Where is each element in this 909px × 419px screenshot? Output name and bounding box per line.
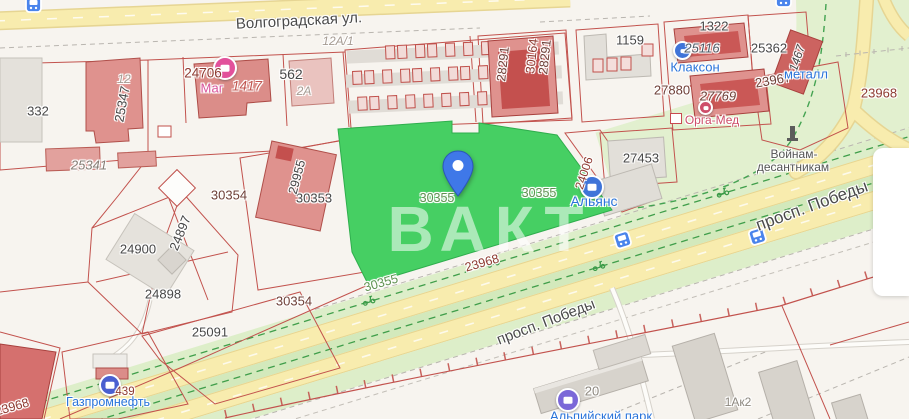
house-number: 12 [117, 72, 130, 86]
memorial-label: Войнам- [771, 147, 818, 161]
poi-label[interactable]: Клаксон [670, 60, 719, 75]
parcel-number: 30355 [522, 186, 557, 200]
parcel-number: 24706 [184, 66, 222, 81]
parcel-number: 332 [27, 104, 49, 119]
map-canvas[interactable]: ВАКТ Волгоградская ул. просп. Победы про… [0, 0, 909, 419]
map-pin-icon[interactable] [441, 150, 475, 197]
house-number: 2А [297, 84, 312, 98]
parcel-number: 1159 [616, 33, 644, 48]
poi-label[interactable]: Орга-Мед [685, 113, 739, 127]
poi-label[interactable]: Маг [201, 81, 224, 96]
memorial-label: десантникам [757, 160, 829, 174]
tram-stop-icon[interactable] [776, 0, 791, 7]
poi-label[interactable]: Альпийский парк [550, 409, 652, 419]
side-panel-edge[interactable] [873, 148, 909, 296]
poi-label[interactable]: Альянс [570, 193, 617, 209]
parcel-number: 25362 [751, 41, 787, 56]
house-number: 25116 [684, 41, 719, 56]
parcel-number: 562 [279, 66, 302, 82]
parcel-number: 24900 [120, 242, 156, 257]
parcel-number: 27453 [623, 151, 659, 166]
parcel-number: 23968 [861, 86, 897, 101]
house-number: 1417 [232, 79, 262, 94]
medical-building-icon [670, 113, 682, 124]
parcel-number: 30353 [296, 191, 332, 206]
house-number: 1Ак2 [725, 395, 752, 409]
poi-label[interactable]: Газпромнефть [66, 395, 150, 409]
house-number: 25341 [71, 158, 107, 173]
parcel-number: 30354 [276, 294, 312, 309]
parcel-number: 27880 [654, 83, 690, 98]
tram-stop-icon[interactable] [613, 231, 632, 250]
parcel-number: 25091 [192, 325, 228, 340]
parcel-number: 1322 [700, 19, 729, 34]
house-number: 20 [585, 384, 599, 399]
house-number: 27769 [700, 89, 736, 104]
house-number: 12А/1 [322, 34, 353, 48]
poi-label[interactable]: металл [784, 67, 828, 82]
parcel-number: 24898 [145, 287, 181, 302]
parcel-number: 30354 [211, 188, 247, 203]
tram-stop-icon[interactable] [26, 0, 41, 12]
